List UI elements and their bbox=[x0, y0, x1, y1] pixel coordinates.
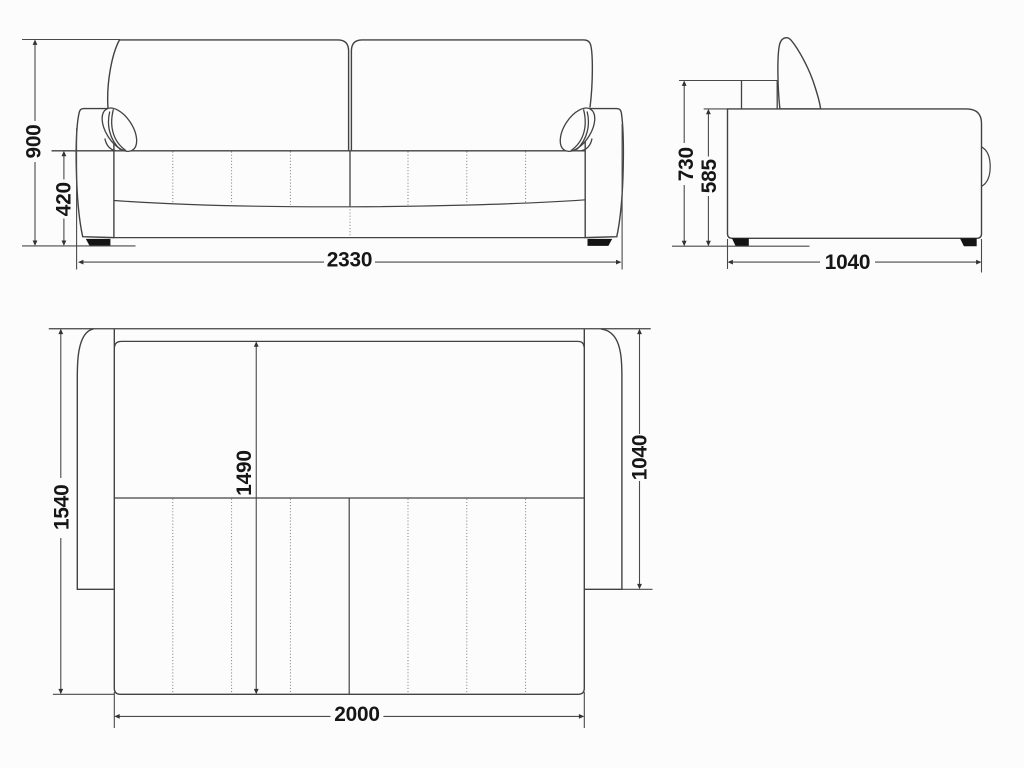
svg-text:730: 730 bbox=[675, 147, 698, 181]
svg-text:420: 420 bbox=[53, 182, 76, 216]
svg-text:585: 585 bbox=[698, 159, 721, 193]
svg-text:1040: 1040 bbox=[825, 251, 870, 274]
svg-text:2000: 2000 bbox=[334, 703, 379, 726]
svg-text:1540: 1540 bbox=[51, 485, 74, 530]
svg-text:1490: 1490 bbox=[233, 450, 256, 495]
svg-text:900: 900 bbox=[23, 124, 46, 158]
svg-text:2330: 2330 bbox=[327, 249, 372, 272]
svg-text:1040: 1040 bbox=[629, 435, 652, 480]
